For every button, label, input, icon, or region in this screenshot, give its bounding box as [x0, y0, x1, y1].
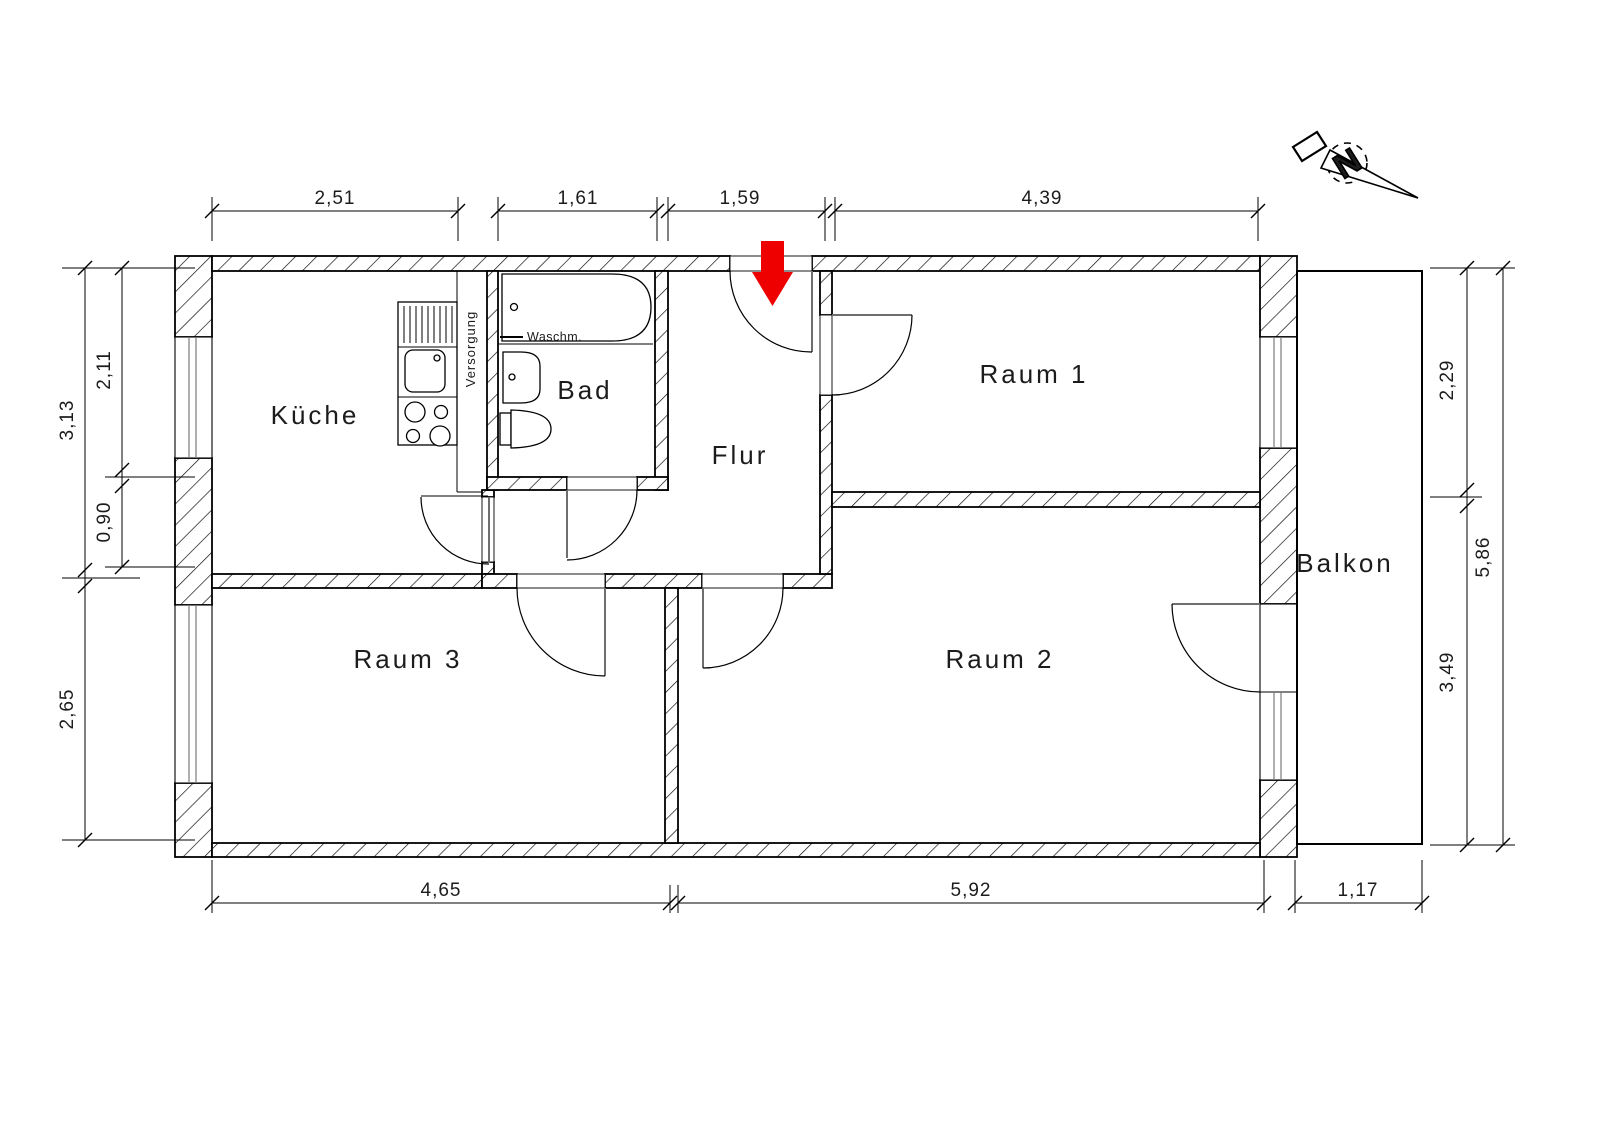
room-label-flur: Flur	[712, 440, 769, 470]
dimension-chain-bottom: 4,65 5,92 1,17	[205, 860, 1429, 913]
dimension-chain-top: 2,51 1,61 1,59 4,39	[205, 188, 1265, 241]
dim-left-outer-2: 2,65	[57, 689, 78, 730]
dim-right-outer-1: 5,86	[1473, 537, 1494, 578]
kitchen-fixtures	[398, 302, 457, 446]
kitchen-unit-icon	[398, 302, 457, 446]
bad-door	[567, 490, 637, 560]
window-raum1	[1260, 337, 1297, 448]
dim-ticks-left	[78, 261, 129, 847]
north-arrow-icon: N	[1293, 132, 1418, 198]
room-label-kueche: Küche	[271, 400, 360, 430]
balcony-door-window	[1260, 604, 1297, 780]
dim-left-inner-1: 2,11	[94, 350, 115, 390]
raum1-door	[832, 315, 912, 395]
supply-shaft-label: Versorgung	[463, 311, 478, 388]
floor-plan-page: N Küche Bad Flur Raum 1 Raum 2 Raum 3 Ba…	[0, 0, 1600, 1131]
room-label-raum2: Raum 2	[945, 644, 1054, 674]
dim-right-inner-2: 3,49	[1437, 652, 1458, 693]
dim-bottom-2: 5,92	[951, 880, 992, 901]
dim-bottom-1: 4,65	[421, 880, 462, 901]
dimension-chain-right: 2,29 3,49 5,86	[1430, 261, 1515, 852]
raum3-door	[517, 588, 605, 676]
washing-machine-label: Waschm.	[527, 330, 582, 344]
bathroom-fixtures	[498, 274, 653, 448]
dim-left-inner-2: 0,90	[94, 502, 115, 543]
window-kueche	[175, 337, 212, 458]
dim-top-3: 1,59	[720, 188, 761, 209]
dim-top-4: 4,39	[1022, 188, 1063, 209]
room-label-bad: Bad	[557, 375, 612, 405]
dim-top-2: 1,61	[558, 188, 599, 209]
room-label-raum3: Raum 3	[353, 644, 462, 674]
toilet-icon	[500, 410, 551, 448]
dim-bottom-3: 1,17	[1338, 880, 1379, 901]
kueche-door	[421, 496, 489, 564]
balcony-door	[1172, 604, 1260, 692]
walls	[175, 256, 1297, 857]
room-label-raum1: Raum 1	[979, 359, 1088, 389]
dim-right-inner-1: 2,29	[1437, 360, 1458, 401]
window-raum3	[175, 605, 212, 783]
room-label-balkon: Balkon	[1296, 548, 1394, 578]
dim-top-1: 2,51	[315, 188, 356, 209]
entrance-arrow-icon	[752, 241, 793, 306]
dim-left-outer-1: 3,13	[57, 400, 78, 441]
raum2-door	[703, 588, 783, 668]
floor-plan-drawing: N Küche Bad Flur Raum 1 Raum 2 Raum 3 Ba…	[0, 0, 1600, 1131]
washbasin-icon	[503, 352, 540, 403]
